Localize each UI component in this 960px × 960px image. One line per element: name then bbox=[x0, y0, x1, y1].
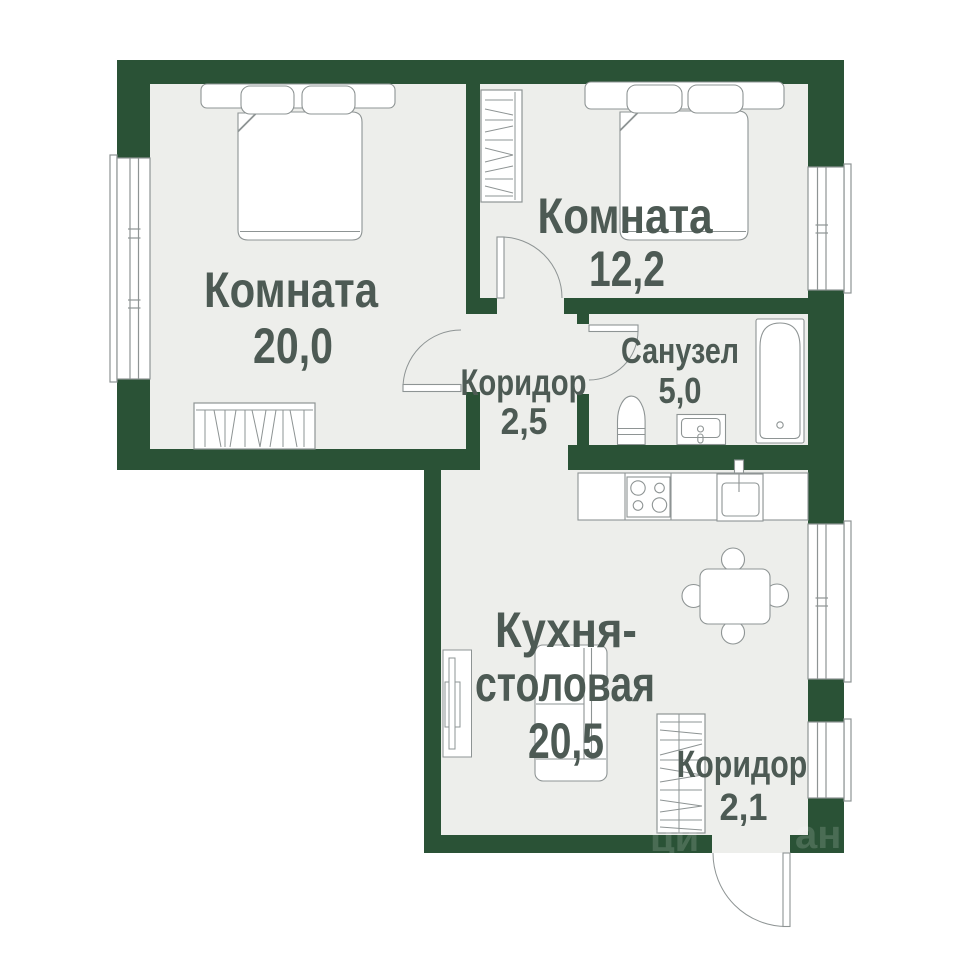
svg-text:Комната: Комната bbox=[537, 188, 712, 244]
svg-text:Коридор: Коридор bbox=[677, 744, 807, 786]
svg-text:20,0: 20,0 bbox=[253, 318, 333, 374]
svg-text:5,0: 5,0 bbox=[658, 372, 701, 412]
svg-text:Коридор: Коридор bbox=[461, 363, 587, 404]
svg-text:20,5: 20,5 bbox=[528, 712, 604, 769]
svg-text:2,5: 2,5 bbox=[501, 402, 548, 443]
svg-text:2,1: 2,1 bbox=[719, 785, 767, 828]
svg-text:Кухня-: Кухня- bbox=[495, 602, 637, 657]
svg-text:столовая: столовая bbox=[475, 655, 655, 712]
svg-text:Комната: Комната bbox=[204, 261, 378, 317]
svg-text:12,2: 12,2 bbox=[589, 240, 665, 297]
svg-text:Санузел: Санузел bbox=[621, 331, 739, 371]
